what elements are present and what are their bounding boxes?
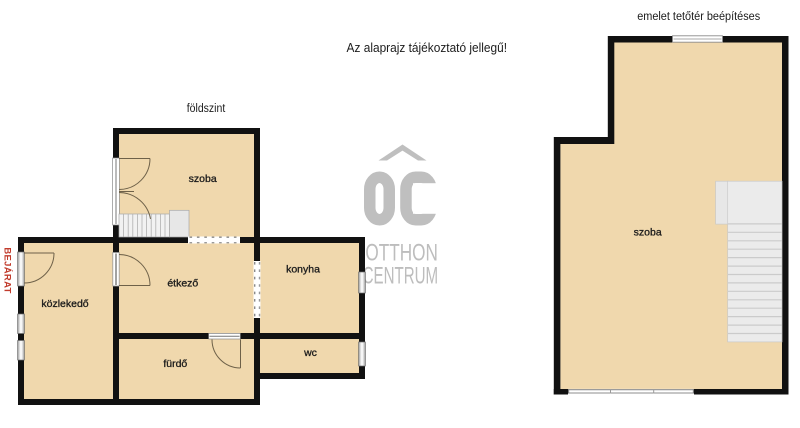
- svg-text:étkező: étkező: [167, 278, 198, 290]
- svg-text:emelet tetőtér beépítéses: emelet tetőtér beépítéses: [637, 11, 760, 23]
- svg-text:konyha: konyha: [286, 263, 320, 275]
- svg-text:CENTRUM: CENTRUM: [363, 263, 439, 290]
- svg-text:szoba: szoba: [634, 227, 662, 239]
- svg-text:wc: wc: [303, 347, 317, 359]
- svg-text:BEJÁRAT: BEJÁRAT: [2, 247, 13, 293]
- svg-text:közlekedő: közlekedő: [41, 298, 88, 310]
- svg-text:szoba: szoba: [189, 173, 217, 185]
- svg-text:földszint: földszint: [187, 103, 226, 115]
- svg-text:Az alaprajz tájékoztató jelleg: Az alaprajz tájékoztató jellegű!: [347, 41, 508, 55]
- svg-text:fürdő: fürdő: [163, 358, 187, 370]
